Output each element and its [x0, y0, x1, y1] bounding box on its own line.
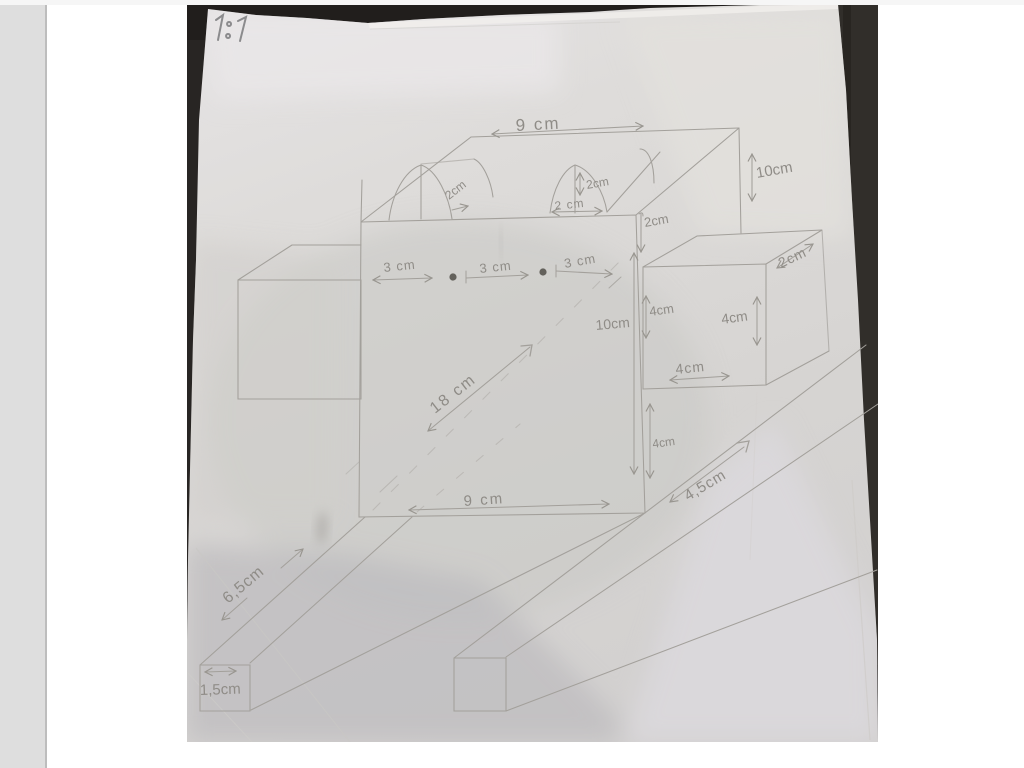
svg-text:9 cm: 9 cm — [515, 114, 561, 135]
svg-text:10cm: 10cm — [595, 314, 630, 333]
svg-text:9 cm: 9 cm — [463, 490, 505, 510]
svg-text:4cm: 4cm — [675, 358, 706, 377]
svg-text:1,5cm: 1,5cm — [200, 681, 241, 699]
